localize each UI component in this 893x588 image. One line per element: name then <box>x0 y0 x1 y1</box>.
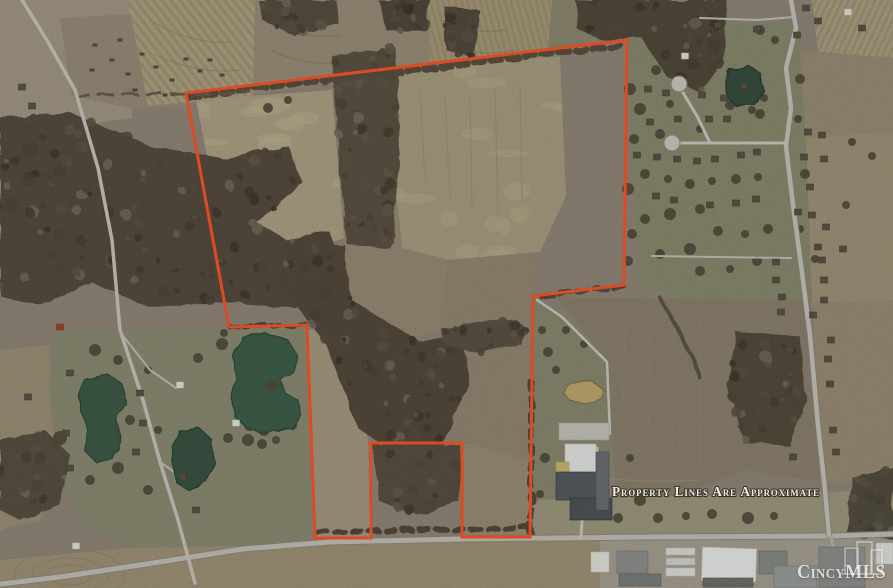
photo-grain-overlay <box>0 0 893 588</box>
satellite-image: Property Lines Are Approximate CincyMLS <box>0 0 893 588</box>
aerial-property-listing-photo: Property Lines Are Approximate CincyMLS <box>0 0 893 588</box>
watermark-text: CincyMLS <box>797 561 886 583</box>
property-lines-disclaimer: Property Lines Are Approximate <box>612 484 820 499</box>
